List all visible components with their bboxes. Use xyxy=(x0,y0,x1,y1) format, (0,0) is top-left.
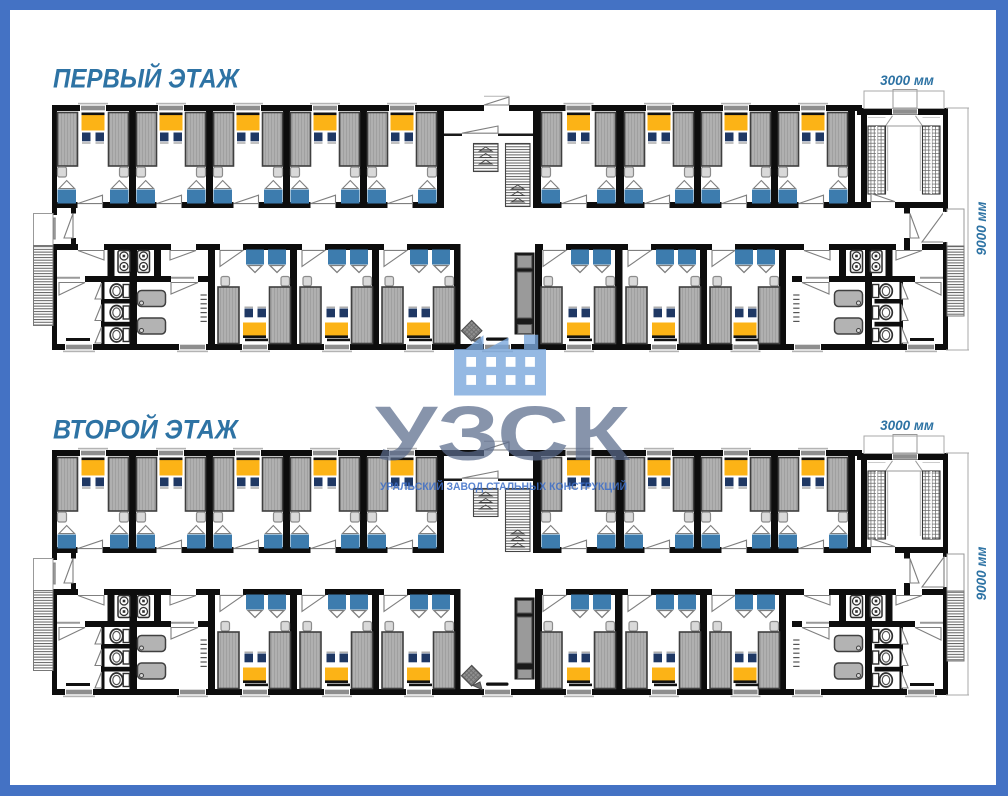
svg-text:УЗСК: УЗСК xyxy=(375,391,631,477)
svg-text:9000 мм: 9000 мм xyxy=(974,547,989,601)
svg-text:ВТОРОЙ ЭТАЖ: ВТОРОЙ ЭТАЖ xyxy=(53,413,240,445)
svg-text:ПЕРВЫЙ ЭТАЖ: ПЕРВЫЙ ЭТАЖ xyxy=(53,62,241,94)
svg-text:УРАЛЬСКИЙ ЗАВОД СТАЛЬНЫХ КОНСТ: УРАЛЬСКИЙ ЗАВОД СТАЛЬНЫХ КОНСТРУКЦИЙ xyxy=(380,480,627,493)
svg-text:3000 мм: 3000 мм xyxy=(880,73,934,88)
svg-text:9000 мм: 9000 мм xyxy=(974,202,989,256)
svg-text:3000 мм: 3000 мм xyxy=(880,418,934,433)
